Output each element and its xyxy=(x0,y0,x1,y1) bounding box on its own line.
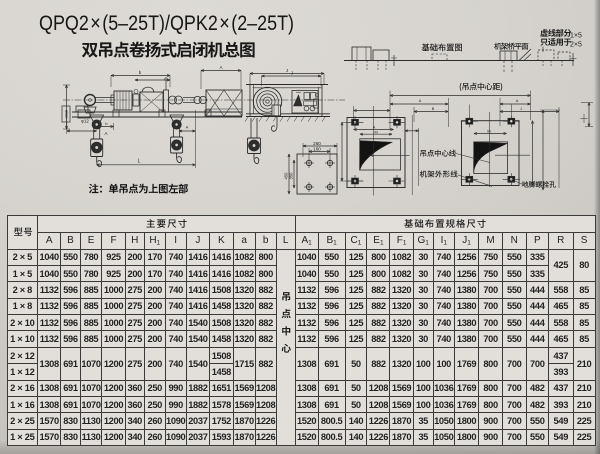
svg-text:260: 260 xyxy=(313,141,321,146)
svg-text:b: b xyxy=(139,70,142,75)
svg-text:b: b xyxy=(105,121,108,126)
svg-text:M: M xyxy=(487,129,490,134)
svg-text:1×5: 1×5 xyxy=(570,33,582,40)
svg-text:J: J xyxy=(291,71,293,76)
svg-text:L: L xyxy=(138,159,141,165)
svg-text:J: J xyxy=(286,68,288,73)
svg-text:A: A xyxy=(219,65,222,70)
svg-text:A: A xyxy=(419,99,422,103)
svg-text:φ12: φ12 xyxy=(81,119,89,124)
svg-text:350: 350 xyxy=(289,172,294,180)
svg-text:A: A xyxy=(104,131,107,136)
svg-text:J: J xyxy=(520,107,522,111)
svg-text:160: 160 xyxy=(313,147,321,152)
svg-text:B: B xyxy=(432,107,435,111)
svg-text:2×5: 2×5 xyxy=(570,42,582,49)
svg-text:QPQ2 × (5–25T)/QPK2 × (2–25T): QPQ2 × (5–25T)/QPK2 × (2–25T) xyxy=(39,10,294,35)
svg-text:A: A xyxy=(186,125,189,130)
svg-text:1016: 1016 xyxy=(65,110,69,118)
svg-text:M: M xyxy=(374,130,377,135)
svg-text:A: A xyxy=(516,99,519,103)
